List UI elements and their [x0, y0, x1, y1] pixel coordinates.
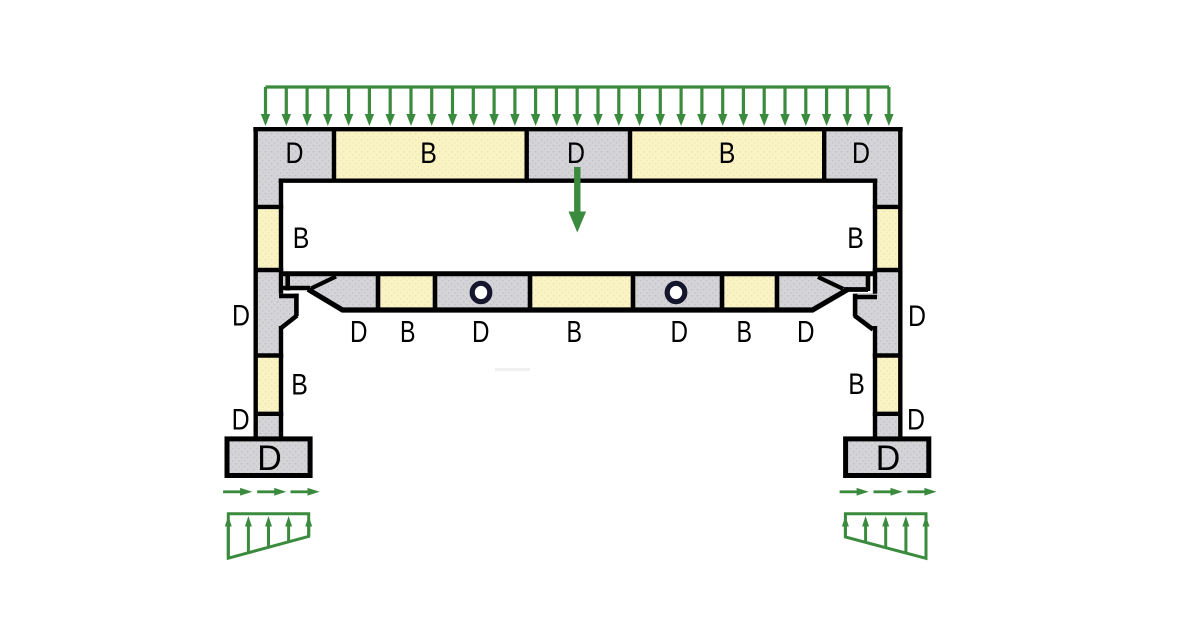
svg-text:B: B: [848, 368, 865, 401]
svg-text:D: D: [350, 315, 368, 349]
svg-text:D: D: [232, 300, 250, 333]
svg-text:B: B: [719, 137, 736, 170]
svg-text:D: D: [876, 439, 901, 478]
svg-text:D: D: [907, 403, 925, 436]
svg-text:D: D: [797, 315, 815, 349]
svg-text:D: D: [567, 137, 585, 170]
svg-text:B: B: [420, 137, 437, 170]
svg-text:B: B: [291, 369, 308, 402]
svg-text:D: D: [852, 137, 870, 170]
svg-text:D: D: [670, 315, 688, 349]
svg-text:B: B: [400, 315, 416, 349]
svg-text:D: D: [286, 137, 304, 170]
svg-text:D: D: [257, 439, 282, 478]
svg-text:B: B: [566, 315, 582, 349]
svg-text:D: D: [472, 315, 490, 349]
svg-text:D: D: [908, 300, 926, 333]
svg-text:D: D: [232, 403, 250, 436]
svg-text:B: B: [293, 222, 310, 255]
svg-text:B: B: [847, 222, 864, 255]
svg-text:B: B: [736, 315, 752, 349]
